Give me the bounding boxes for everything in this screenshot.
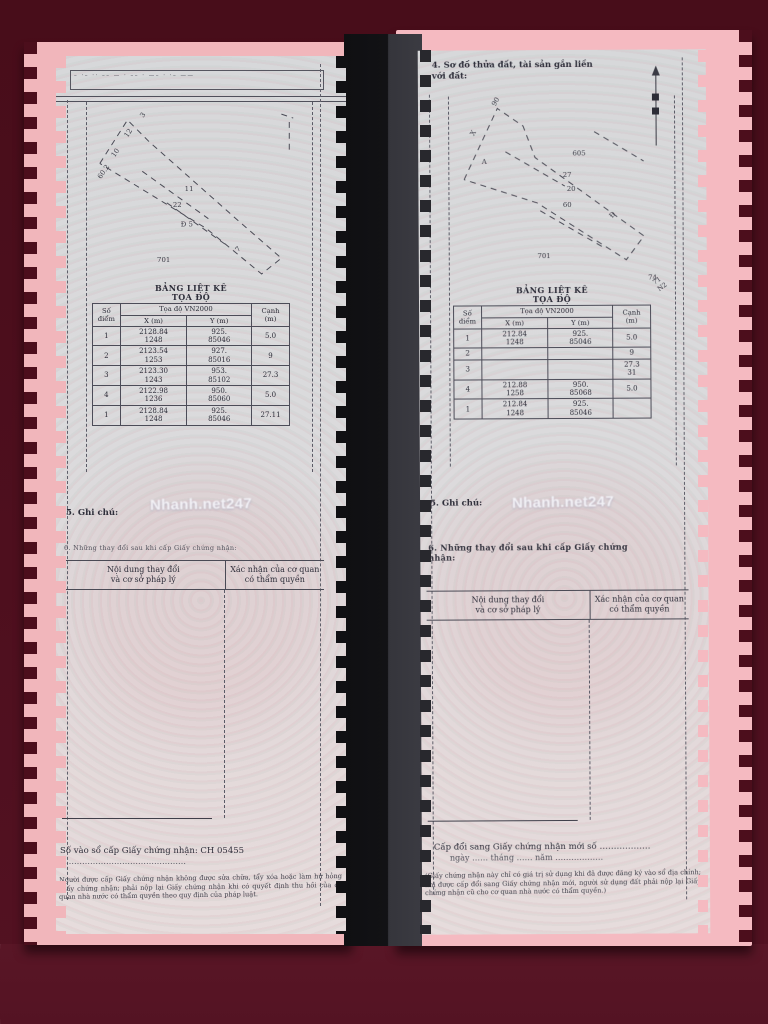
watermark: Nhanh.net247 [512, 493, 614, 512]
col-edge: Cạnh (m) [613, 305, 651, 328]
sketch-label: 60.2 [96, 163, 111, 180]
coord-row: 4212.88 1258950. 850685.0 [454, 379, 651, 400]
changes-table-header: Nội dung thay đổi và cơ sở pháp lý Xác n… [62, 560, 324, 590]
col-x: X (m) [120, 315, 187, 326]
coord-row: 327.3 31 [454, 359, 651, 380]
certificate-page-right: 4. Sơ đồ thửa đất, tài sản gắn liền với … [418, 49, 711, 934]
changes-col-confirm: Xác nhận của cơ quan có thẩm quyền [226, 561, 324, 589]
sketch-boundary-line [594, 131, 643, 161]
coord-row: 1212.84 1248925. 85046 [454, 398, 651, 419]
coordinate-table-title: BẢNG LIỆT KÊ TỌA ĐỘ [453, 286, 651, 305]
sketch-label: 20 [567, 185, 576, 193]
reissue-line: Cấp đổi sang Giấy chứng nhận mới số …………… [434, 842, 651, 853]
section-6-heading: 6. Những thay đổi sau khi cấp Giấy chứng… [64, 544, 304, 552]
coord-row: 32123.30 1243953. 8510227.3 [93, 366, 290, 386]
sketch-label: 701 [157, 256, 170, 264]
section-6-heading: 6. Những thay đổi sau khi cấp Giấy chứng… [428, 542, 633, 563]
col-y: Y (m) [187, 315, 252, 326]
sketch-label: 12 [123, 127, 135, 139]
date-line: ngày …… tháng …… năm ……………… [450, 853, 603, 863]
coordinate-table-block: BẢNG LIỆT KÊ TỌA ĐỘ Số điểm Tọa độ VN200… [453, 286, 652, 420]
col-point: Số điểm [93, 304, 121, 326]
sketch-label: 605 [572, 149, 585, 157]
legal-notes: (Giấy chứng nhận này chỉ có giá trị sử d… [425, 868, 701, 898]
sketch-label: 10 [110, 147, 122, 159]
table-surface [0, 944, 768, 1024]
coordinate-table: Số điểm Tọa độ VN2000 Cạnh (m) X (m) Y (… [92, 303, 290, 425]
col-edge: Cạnh (m) [252, 304, 290, 326]
sketch-frame-left [86, 102, 87, 472]
changes-table-bottom-line [62, 818, 212, 819]
coord-row: 1212.84 1248925. 850465.0 [454, 328, 651, 349]
sketch-label: Đ 5 [181, 221, 193, 229]
sketch-label: X [469, 129, 478, 137]
legal-notes: Người được cấp Giấy chứng nhận không đượ… [59, 872, 342, 902]
col-x: X (m) [481, 317, 548, 329]
sketch-frame-right [312, 102, 313, 472]
changes-table-body [427, 619, 690, 820]
sketch-label: 3 [138, 111, 147, 119]
sketch-label: A [481, 158, 488, 166]
top-strip-box: – ·– ·· –– — · –– · —– · ·– —— [70, 70, 324, 90]
dotted-line: ……………………………………… [66, 857, 186, 866]
changes-col-content: Nội dung thay đổi và cơ sở pháp lý [62, 561, 226, 589]
top-strip-text: – ·– ·· –– — · –– · —– · ·– —— [74, 73, 194, 79]
sketch-label: 90 [490, 96, 501, 108]
sketch-boundary-line [167, 203, 228, 246]
coordinate-table: Số điểm Tọa độ VN2000 Cạnh (m) X (m) Y (… [453, 305, 652, 420]
page-edge-left [56, 56, 66, 934]
coord-row: 22123.54 1253927. 850169 [93, 346, 290, 366]
changes-col-content: Nội dung thay đổi và cơ sở pháp lý [427, 591, 591, 620]
photo-land-certificate: – ·– ·· –– — · –– · —– · ·– —— 3121060.2… [0, 0, 768, 1024]
registry-number-line: Số vào sổ cấp Giấy chứng nhận: CH 05455 [60, 846, 244, 856]
page-edge-gap-right [420, 50, 431, 934]
changes-table: Nội dung thay đổi và cơ sở pháp lý Xác n… [427, 589, 690, 840]
sketch-label: 60 [563, 201, 572, 209]
coord-row: 12128.84 1248925. 850465.0 [93, 326, 290, 346]
page-edge-right [698, 50, 708, 934]
page-gap-shadow [344, 34, 422, 946]
sketch-label: 22 [173, 201, 182, 209]
sketch-label: 11 [185, 185, 194, 193]
cadastral-sketch: 90XA605272060Đ70174 [446, 91, 669, 290]
col-y: Y (m) [548, 317, 613, 328]
changes-table: Nội dung thay đổi và cơ sở pháp lý Xác n… [62, 560, 324, 830]
coord-row: 42122.98 1236950. 850605.0 [93, 386, 290, 406]
coord-row: 12128.84 1248925. 8504627.11 [93, 405, 290, 425]
sketch-boundary-line [142, 171, 208, 218]
torn-edge-right [739, 30, 752, 946]
section-5-note: 5. Ghi chú: [66, 508, 118, 518]
coordinate-table-block: BẢNG LIỆT KÊ TỌA ĐỘ Số điểm Tọa độ VN200… [92, 284, 290, 426]
changes-col-confirm: Xác nhận của cơ quan có thẩm quyền [590, 590, 688, 619]
coordinate-table-title: BẢNG LIỆT KÊ TỌA ĐỘ [92, 284, 290, 302]
sketch-boundary-line [281, 114, 293, 118]
sketch-label: Đ [608, 210, 618, 220]
watermark: Nhanh.net247 [150, 495, 252, 514]
torn-edge-left [24, 42, 37, 945]
sketch-label: 27 [563, 171, 572, 179]
section-5-note: 5. Ghi chú: [430, 498, 482, 508]
col-coords: Tọa độ VN2000 [120, 304, 251, 315]
page-edge-gap-left [336, 56, 348, 934]
sketch-boundary-line [464, 108, 644, 261]
sketch-boundary-line [100, 120, 282, 274]
col-point: Số điểm [454, 306, 482, 328]
changes-table-header: Nội dung thay đổi và cơ sở pháp lý Xác n… [427, 589, 689, 620]
sketch-boundary-line [540, 211, 604, 249]
sketch-frame-right [674, 95, 677, 465]
section-4-heading: 4. Sơ đồ thửa đất, tài sản gắn liền với … [432, 60, 604, 82]
col-coords: Tọa độ VN2000 [481, 306, 612, 318]
changes-table-body [62, 590, 324, 818]
sketch-label: 701 [538, 252, 551, 260]
cadastral-sketch: 3121060.21122Đ 57017 [88, 102, 310, 290]
